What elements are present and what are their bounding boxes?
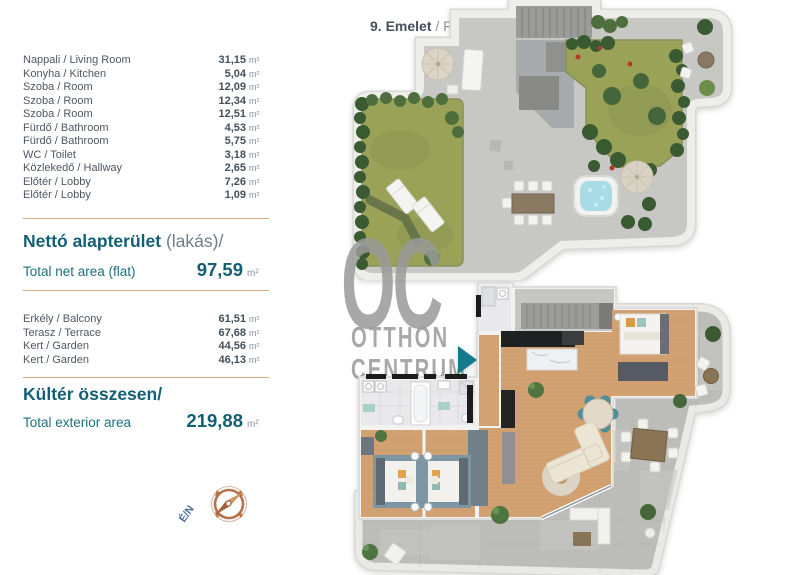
table-row: Erkély / Balcony61,51m² — [23, 313, 269, 327]
table-row: WC / Toilet3,18m² — [23, 149, 269, 163]
exterior-unit: m² — [246, 328, 269, 338]
net-area-unit: m² — [243, 268, 269, 279]
exterior-total-value: 219,88 — [186, 410, 243, 432]
exterior-value: 46,13 — [204, 354, 246, 366]
room-label: Nappali / Living Room — [23, 54, 204, 66]
bed — [373, 455, 422, 508]
exterior-total-unit: m² — [243, 419, 269, 430]
bathroom-block — [361, 374, 475, 425]
room-label: Közlekedő / Hallway — [23, 162, 204, 174]
room-area-unit: m² — [246, 55, 269, 65]
bedrooms-left — [361, 430, 488, 517]
sink — [438, 381, 450, 389]
exterior-label: Kert / Garden — [23, 340, 204, 352]
room-area-unit: m² — [246, 109, 269, 119]
stairs — [516, 6, 592, 38]
room-area-unit: m² — [246, 177, 269, 187]
divider-line — [23, 218, 269, 219]
apartment-plan — [340, 280, 800, 575]
room-area-value: 1,09 — [204, 189, 246, 201]
divider-line — [23, 290, 269, 291]
exterior-label: Erkély / Balcony — [23, 313, 204, 325]
stairwell — [515, 289, 614, 331]
room-area-table: Nappali / Living Room31,15m² Konyha / Ki… — [23, 54, 269, 203]
table-row: Szoba / Room12,09m² — [23, 81, 269, 95]
bedroom-right — [612, 310, 695, 396]
entrance-arrow-icon — [458, 346, 477, 374]
exterior-label: Terasz / Terrace — [23, 327, 204, 339]
toilet — [393, 416, 403, 424]
tv-cabinet — [502, 432, 515, 484]
room-label: Szoba / Room — [23, 108, 204, 120]
compass-icon — [192, 475, 258, 541]
table-row: Előtér / Lobby1,09m² — [23, 189, 269, 203]
exterior-value: 61,51 — [204, 313, 246, 325]
room-label: Előtér / Lobby — [23, 189, 204, 201]
room-label: Konyha / Kitchen — [23, 68, 204, 80]
room-area-unit: m² — [246, 190, 269, 200]
room-area-value: 12,51 — [204, 108, 246, 120]
room-area-unit: m² — [246, 69, 269, 79]
floorplan-flyer: Nappali / Living Room31,15m² Konyha / Ki… — [0, 0, 800, 575]
net-area-total-row: Total net area (flat) 97,59 m² — [23, 259, 269, 281]
hot-tub — [574, 176, 618, 216]
exterior-area-table: Erkély / Balcony61,51m² Terasz / Terrace… — [23, 313, 269, 367]
exterior-total-heading: Kültér összesen/ — [23, 384, 323, 405]
room-label: WC / Toilet — [23, 149, 204, 161]
kitchen-island — [527, 349, 577, 370]
exterior-unit: m² — [246, 341, 269, 351]
table-row: Konyha / Kitchen5,04m² — [23, 68, 269, 82]
bath-mat — [363, 404, 375, 412]
room-label: Szoba / Room — [23, 81, 204, 93]
entry-hall — [479, 335, 499, 426]
exterior-unit: m² — [246, 314, 269, 324]
exterior-total-label-en: Total exterior area — [23, 415, 186, 430]
room-area-unit: m² — [246, 136, 269, 146]
net-area-label-en: Total net area (flat) — [23, 264, 197, 279]
room-area-value: 5,75 — [204, 135, 246, 147]
plant — [375, 430, 387, 442]
table-row: Kert / Garden46,13m² — [23, 354, 269, 368]
room-area-value: 3,18 — [204, 149, 246, 161]
room-area-value: 5,04 — [204, 68, 246, 80]
room-area-value: 2,65 — [204, 162, 246, 174]
divider-line — [23, 377, 269, 378]
room-label: Szoba / Room — [23, 95, 204, 107]
room-area-value: 31,15 — [204, 54, 246, 66]
ottoman — [573, 532, 591, 546]
net-area-value: 97,59 — [197, 259, 243, 281]
dresser — [361, 437, 374, 455]
table-row: Fürdő / Bathroom4,53m² — [23, 122, 269, 136]
table-row: Szoba / Room12,51m² — [23, 108, 269, 122]
table-row: Közlekedő / Hallway2,65m² — [23, 162, 269, 176]
room-area-value: 12,09 — [204, 81, 246, 93]
decor-sphere — [645, 528, 655, 538]
room-area-value: 7,26 — [204, 176, 246, 188]
bed — [422, 455, 471, 508]
exterior-label: Kert / Garden — [23, 354, 204, 366]
room-area-unit: m² — [246, 150, 269, 160]
room-label: Fürdő / Bathroom — [23, 122, 204, 134]
room-label: Előtér / Lobby — [23, 176, 204, 188]
parasol-hot-tub — [621, 161, 653, 193]
table-row: Szoba / Room12,34m² — [23, 95, 269, 109]
room-area-unit: m² — [246, 163, 269, 173]
table-row: Terasz / Terrace67,68m² — [23, 327, 269, 341]
room-area-unit: m² — [246, 96, 269, 106]
exterior-total-heading-hu: Kültér összesen/ — [23, 384, 162, 404]
room-area-unit: m² — [246, 123, 269, 133]
exterior-total-row: Total exterior area 219,88 m² — [23, 410, 269, 432]
table-row: Kert / Garden44,56m² — [23, 340, 269, 354]
exterior-unit: m² — [246, 355, 269, 365]
room-label: Fürdő / Bathroom — [23, 135, 204, 147]
table-row: Nappali / Living Room31,15m² — [23, 54, 269, 68]
exterior-value: 44,56 — [204, 340, 246, 352]
wardrobe — [618, 362, 668, 381]
small-bathroom — [476, 285, 511, 331]
net-area-heading-note: (lakás)/ — [166, 231, 223, 251]
net-area-heading-hu: Nettó alapterület — [23, 231, 166, 251]
room-area-value: 12,34 — [204, 95, 246, 107]
net-area-heading: Nettó alapterület (lakás)/ — [23, 231, 323, 252]
table-row: Fürdő / Bathroom5,75m² — [23, 135, 269, 149]
room-area-unit: m² — [246, 82, 269, 92]
room-area-value: 4,53 — [204, 122, 246, 134]
table-row: Előtér / Lobby7,26m² — [23, 176, 269, 190]
exterior-value: 67,68 — [204, 327, 246, 339]
